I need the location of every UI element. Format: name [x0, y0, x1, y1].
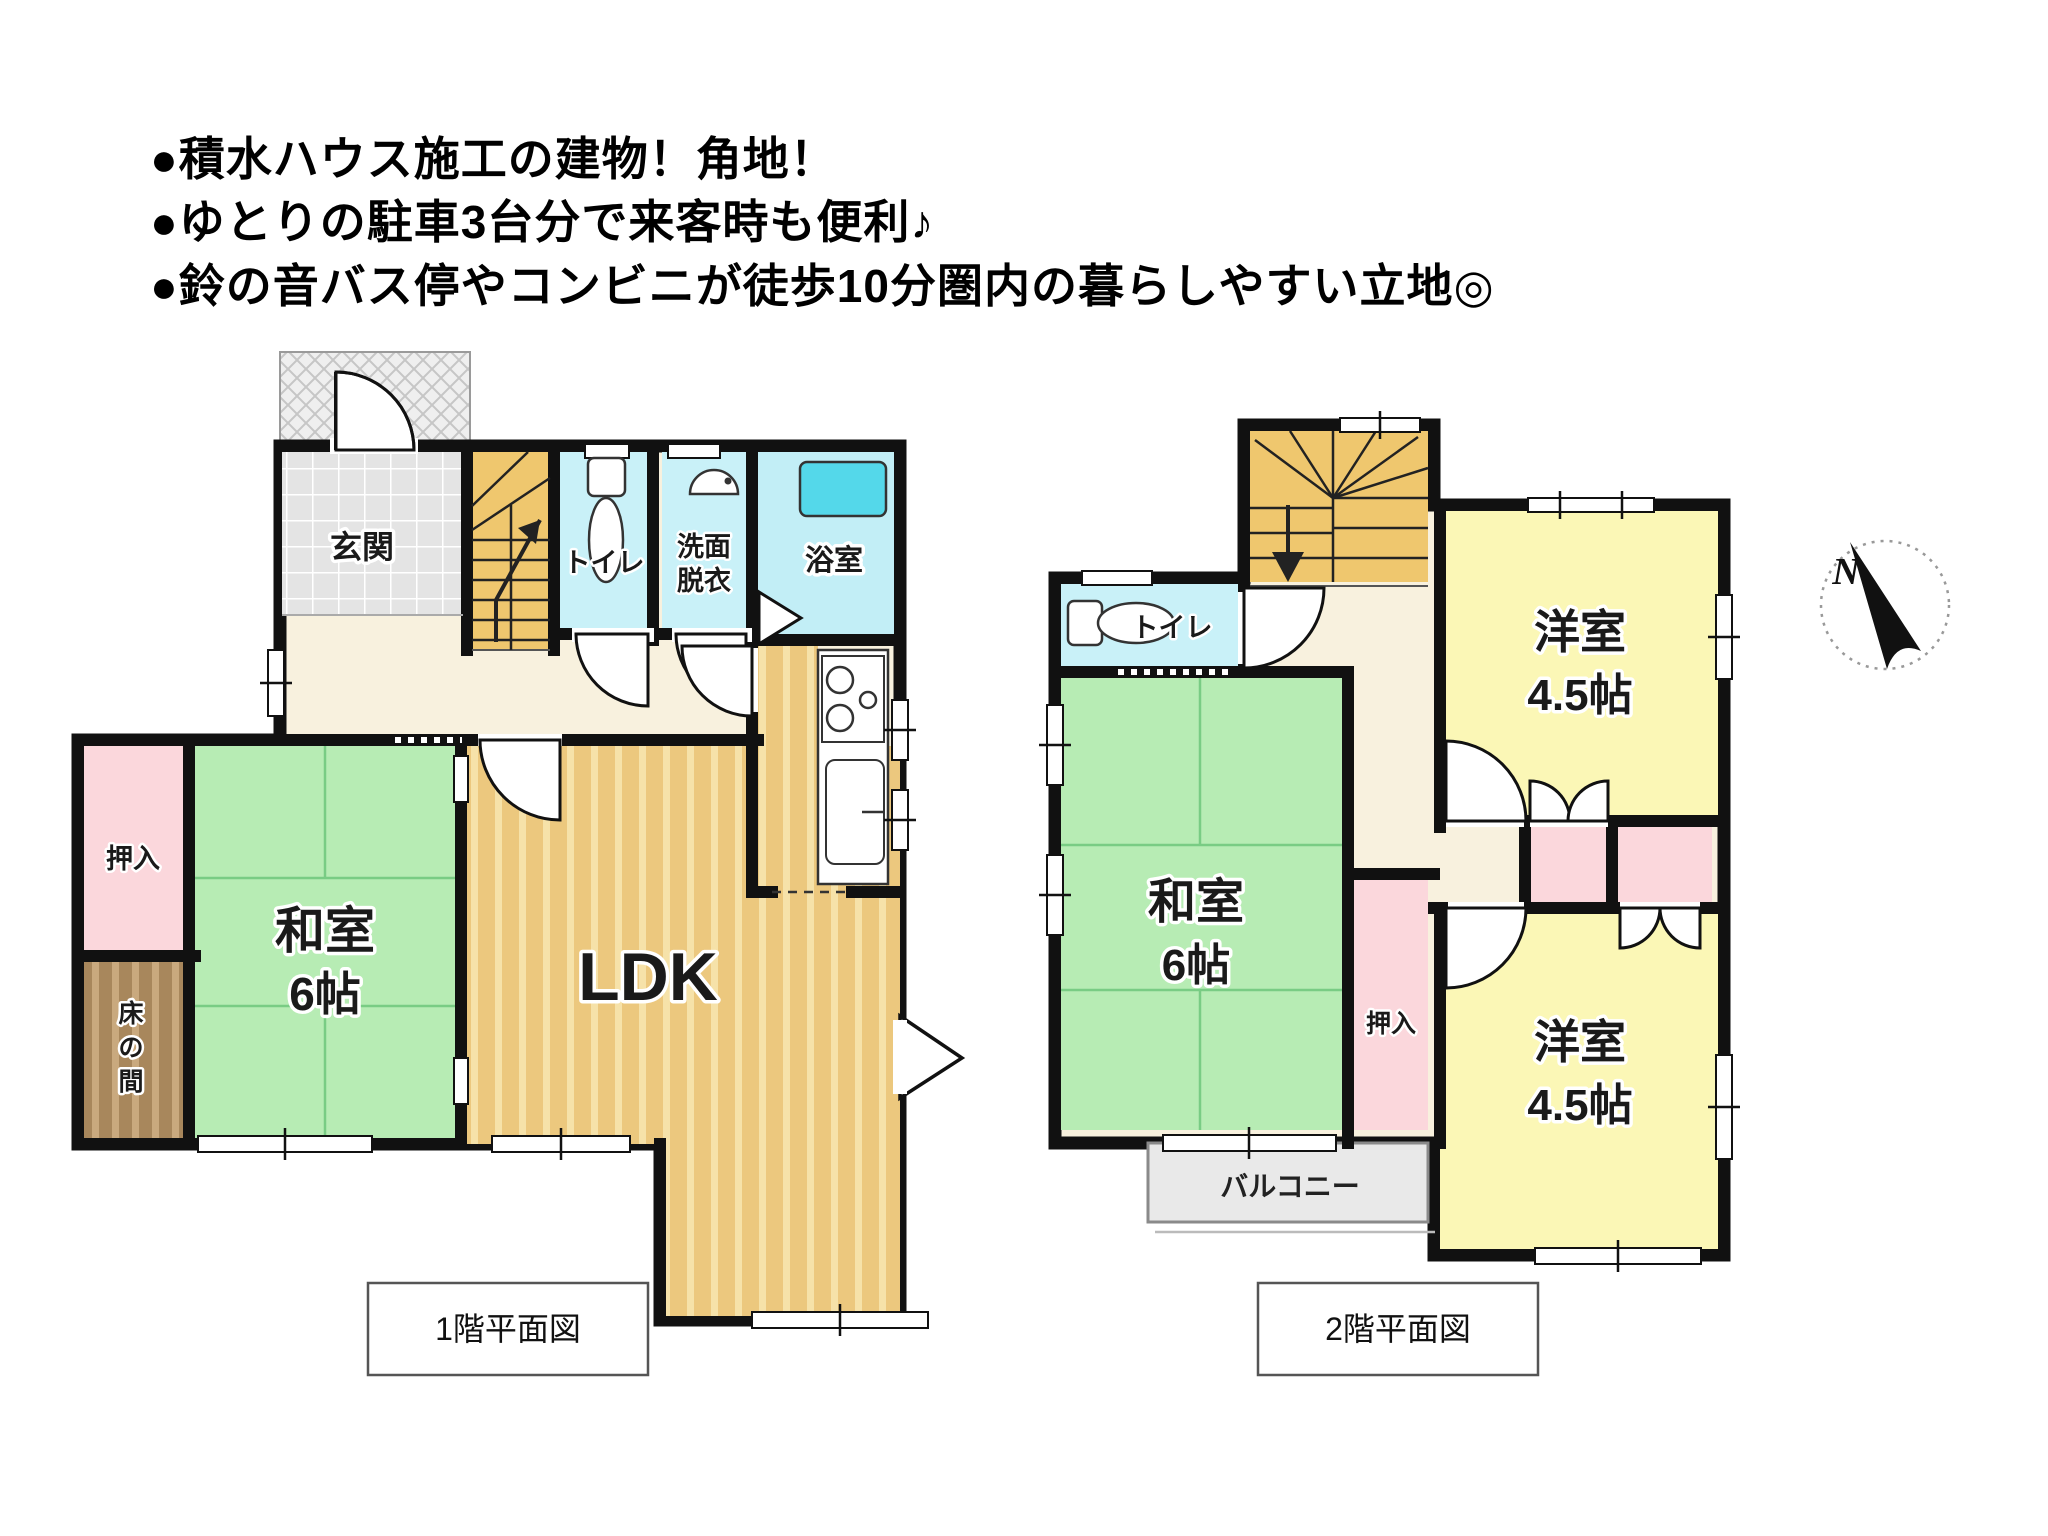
floor1-plan: 玄関 トイレ 洗面 脱衣 浴室 和室 6帖 LDK 押入 床 の 間 — [78, 352, 962, 1336]
label-yoshitsu-b-size: 4.5帖 — [1527, 1081, 1632, 1130]
label-tokonoma: 床 の 間 — [118, 999, 143, 1096]
room-ldk-lower — [660, 1144, 900, 1316]
room-closet-left — [1528, 827, 1608, 902]
floor2-caption: 2階平面図 — [1325, 1311, 1471, 1347]
floor2-plan: トイレ 和室 6帖 押入 洋室 4.5帖 洋室 4.5帖 バルコニー — [1039, 411, 1740, 1272]
label-yoshitsu-b: 洋室 — [1534, 1016, 1626, 1068]
svg-text:床: 床 — [118, 999, 143, 1028]
label-washitsu-1f: 和室 — [275, 903, 375, 959]
kitchen-counter — [818, 650, 888, 884]
room-closet-right — [1616, 827, 1712, 902]
floor2-caption-box: 2階平面図 — [1258, 1283, 1538, 1375]
room-kitchen-strip — [758, 646, 818, 890]
svg-text:の: の — [118, 1034, 143, 1062]
label-yoshitsu-a: 洋室 — [1534, 606, 1626, 658]
floor1-caption-box: 1階平面図 — [368, 1283, 648, 1375]
label-toilet-1f: トイレ — [564, 548, 645, 578]
svg-text:間: 間 — [118, 1068, 143, 1096]
bathtub-icon — [800, 462, 886, 516]
bay-window — [893, 1016, 962, 1098]
stove-icon — [822, 656, 884, 742]
label-oshiire-1f: 押入 — [106, 844, 160, 874]
label-oshiire-2f: 押入 — [1366, 1010, 1416, 1038]
sink-icon — [826, 760, 884, 864]
floor1-caption: 1階平面図 — [435, 1311, 581, 1347]
label-yoshitsu-a-size: 4.5帖 — [1527, 671, 1632, 720]
label-washitsu-2f-size: 6帖 — [1162, 941, 1230, 990]
label-genkan: 玄関 — [330, 529, 394, 565]
label-toilet-2f: トイレ — [1132, 613, 1213, 643]
label-balcony: バルコニー — [1220, 1171, 1359, 1202]
compass: N — [1821, 541, 1949, 669]
label-wash-2: 脱衣 — [677, 565, 731, 596]
floorplan-page: ●積水ハウス施工の建物！角地！ ●ゆとりの駐車3台分で来客時も便利♪ ●鈴の音バ… — [0, 0, 2048, 1536]
room-oshiire-2f — [1354, 880, 1428, 1130]
label-washitsu-2f: 和室 — [1148, 876, 1244, 929]
label-ldk: LDK — [578, 939, 718, 1015]
floorplan-drawing: 玄関 トイレ 洗面 脱衣 浴室 和室 6帖 LDK 押入 床 の 間 — [0, 0, 2048, 1536]
label-washitsu-1f-size: 6帖 — [289, 968, 361, 1020]
label-wash-1: 洗面 — [677, 532, 731, 562]
label-bath: 浴室 — [805, 543, 863, 577]
compass-needle-icon — [1850, 542, 1921, 669]
